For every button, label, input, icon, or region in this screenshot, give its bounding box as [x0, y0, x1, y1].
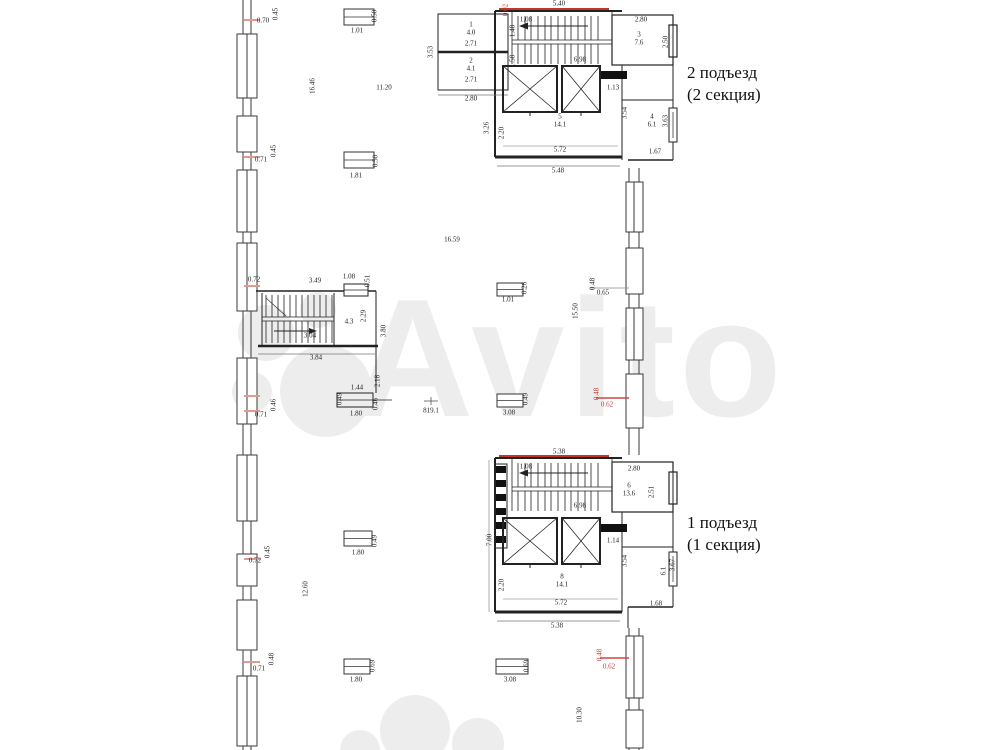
- dim-label: 2.71: [465, 77, 477, 84]
- dim-label: 3.67: [670, 559, 677, 571]
- dim-label: 0.46: [373, 398, 380, 410]
- dim-label: 6.98: [574, 57, 586, 64]
- dim-label: 6.1: [661, 567, 668, 576]
- dim-label: 1.68: [650, 601, 662, 608]
- dim-label: 1.08: [520, 464, 532, 471]
- dim-label: 0.49: [523, 393, 530, 405]
- dim-label: 1.08: [520, 17, 532, 24]
- dim-label: 6.98: [574, 503, 586, 510]
- dim-label: 0.72: [248, 277, 260, 284]
- dim-label: 1.80: [350, 677, 362, 684]
- dim-label: 3.80: [381, 325, 388, 337]
- dim-label: 0.49: [337, 393, 344, 405]
- dim-label: 2.18: [375, 375, 382, 387]
- dim-label: 10.30: [577, 707, 584, 723]
- dim-label: 7.6: [635, 40, 644, 47]
- dim-label: 15.50: [573, 303, 580, 319]
- dim-label: 1.81: [350, 173, 362, 180]
- dim-label: 4.1: [467, 66, 476, 73]
- dim-label: 1.80: [350, 411, 362, 418]
- dim-label: 0.72: [249, 558, 261, 565]
- dim-label: 0.50: [372, 10, 379, 22]
- dim-label: 1.14: [607, 538, 619, 545]
- dim-label: 2.20: [499, 579, 506, 591]
- dim-label: 2.29: [361, 310, 368, 322]
- dim-label: 0.70: [257, 18, 269, 25]
- dimension-layer: 0.700.451.010.5016.4611.200.710.451.810.…: [0, 0, 1000, 750]
- dim-label: 2.20: [499, 127, 506, 139]
- dim-label: 2.80: [465, 96, 477, 103]
- dim-label: 13.6: [623, 491, 635, 498]
- dim-label: 3: [637, 32, 641, 39]
- dim-label: 5.72: [555, 600, 567, 607]
- dim-label: 0.62: [601, 402, 613, 409]
- entrance1-label-line2: (1 секция): [687, 535, 761, 555]
- dim-label: 3.54: [622, 107, 629, 119]
- dim-label: 2.50: [663, 36, 670, 48]
- dim-label: 0.50: [373, 155, 380, 167]
- dim-label: 3.53: [428, 46, 435, 58]
- dim-label: 0.69: [370, 660, 377, 672]
- dim-label: 6: [627, 483, 631, 490]
- dim-label: 0.62: [603, 664, 615, 671]
- dim-label: 4.3: [345, 319, 354, 326]
- dim-label: 0.02: [503, 4, 510, 16]
- dim-label: 0.45: [265, 546, 272, 558]
- dim-label: 7.00: [487, 534, 494, 546]
- entrance2-label-line2: (2 секция): [687, 85, 761, 105]
- dim-label: 3.49: [309, 278, 321, 285]
- dim-label: 0.71: [253, 666, 265, 673]
- dim-label: 1.67: [649, 149, 661, 156]
- dim-label: 4: [650, 114, 654, 121]
- dim-label: 0.26: [522, 282, 529, 294]
- dim-label: 16.46: [310, 78, 317, 94]
- entrance2-label-line1: 2 подъезд: [687, 63, 757, 83]
- dim-label: 0.48: [594, 388, 601, 400]
- dim-label: 4.0: [467, 30, 476, 37]
- dim-label: 5.48: [552, 168, 564, 175]
- dim-label: 3.08: [504, 677, 516, 684]
- dim-label: 1.48: [510, 25, 517, 37]
- dim-label: 3.54: [622, 555, 629, 567]
- dim-label: 0.51: [365, 275, 372, 287]
- floorplan-screenshot: Avito: [0, 0, 1000, 750]
- dim-label: 5: [558, 114, 562, 121]
- dim-label: 819.1: [423, 408, 439, 415]
- dim-label: 0.71: [255, 412, 267, 419]
- dim-label: 1.08: [343, 274, 355, 281]
- dim-label: 1.13: [607, 85, 619, 92]
- dim-label: 0.48: [269, 653, 276, 665]
- dim-label: 2.80: [635, 17, 647, 24]
- dim-label: 1.58: [510, 55, 517, 67]
- dim-label: 0.46: [271, 399, 278, 411]
- dim-label: 8: [560, 574, 564, 581]
- dim-label: 2.80: [628, 466, 640, 473]
- dim-label: 16.59: [444, 237, 460, 244]
- dim-label: 1.44: [351, 385, 363, 392]
- dim-label: 3.04: [304, 333, 316, 340]
- dim-label: 12.60: [303, 581, 310, 597]
- dim-label: 5.38: [553, 449, 565, 456]
- dim-label: 0.45: [271, 145, 278, 157]
- dim-label: 11.20: [376, 85, 392, 92]
- dim-label: 2.71: [465, 41, 477, 48]
- dim-label: 1.01: [502, 297, 514, 304]
- dim-label: 0.48: [590, 278, 597, 290]
- dim-label: 3.08: [503, 410, 515, 417]
- dim-label: 2.51: [649, 486, 656, 498]
- dim-label: 0.48: [597, 649, 604, 661]
- dim-label: 0.69: [524, 660, 531, 672]
- dim-label: 14.1: [554, 122, 566, 129]
- dim-label: 0.71: [255, 157, 267, 164]
- dim-label: 3.63: [663, 115, 670, 127]
- dim-label: 5.40: [553, 1, 565, 8]
- dim-label: 0.45: [273, 8, 280, 20]
- dim-label: 1.80: [352, 550, 364, 557]
- dim-label: 0.65: [597, 290, 609, 297]
- dim-label: 2: [469, 58, 473, 65]
- dim-label: 5.38: [551, 623, 563, 630]
- dim-label: 1.01: [351, 28, 363, 35]
- dim-label: 5.72: [554, 147, 566, 154]
- dim-label: 14.1: [556, 582, 568, 589]
- dim-label: 3.84: [310, 355, 322, 362]
- dim-label: 0.49: [372, 535, 379, 547]
- dim-label: 6.1: [648, 122, 657, 129]
- dim-label: 1: [469, 22, 473, 29]
- dim-label: 3.26: [484, 122, 491, 134]
- entrance1-label-line1: 1 подъезд: [687, 513, 757, 533]
